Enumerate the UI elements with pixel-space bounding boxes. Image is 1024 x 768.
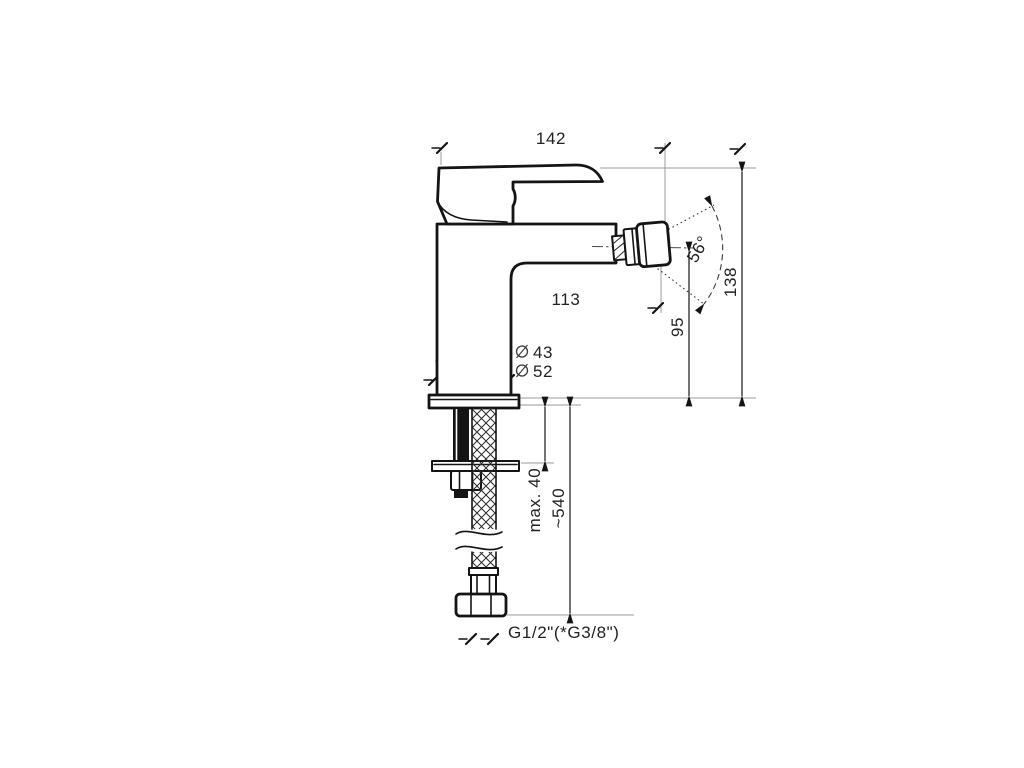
hose-hex-nut xyxy=(456,594,506,616)
hose-ferrule xyxy=(471,575,496,594)
swivel-angle-label: 56° xyxy=(683,233,713,266)
faucet-handle xyxy=(438,165,603,224)
dim-spout-height: 95 xyxy=(668,252,689,396)
spout-height-label: 95 xyxy=(668,317,687,337)
aerator-assembly xyxy=(611,222,671,270)
dim-overall-height: 138 xyxy=(721,172,742,396)
drawing-page: 95 138 max. 40 ~540 142 113 xyxy=(0,0,1024,768)
overall-height-label: 138 xyxy=(721,267,740,297)
rod-end xyxy=(454,490,468,498)
deck-max-label: max. 40 xyxy=(525,468,544,533)
dim-overall-width: 142 xyxy=(432,129,670,153)
overall-width-label: 142 xyxy=(536,129,566,148)
base-plate xyxy=(429,395,519,408)
hose-break-lower xyxy=(456,546,502,549)
tick-aux-right xyxy=(730,144,745,154)
swivel-arc xyxy=(704,206,723,304)
dim-hose-length: ~540 xyxy=(549,407,570,613)
thread-label: G1/2"(*G3/8") xyxy=(508,623,620,642)
drawing-canvas: 95 138 max. 40 ~540 142 113 xyxy=(0,0,1024,768)
base-dia-label: 52 xyxy=(533,362,553,381)
supply-hose-lower xyxy=(472,552,496,568)
hose-collar xyxy=(469,568,498,575)
body-dia-label: 43 xyxy=(533,343,553,362)
faucet xyxy=(429,165,616,408)
diameter-icon xyxy=(517,345,528,358)
faucet-body xyxy=(437,224,616,395)
dim-thread: G1/2"(*G3/8") xyxy=(459,623,620,644)
spout-reach-label: 113 xyxy=(552,290,581,309)
threaded-rod xyxy=(453,408,469,462)
hose-length-label: ~540 xyxy=(549,488,568,529)
dim-deck-max: max. 40 xyxy=(525,407,545,532)
diameter-icon xyxy=(517,364,528,377)
aerator-cap xyxy=(636,222,671,268)
supply-hose-upper xyxy=(472,408,496,529)
hose-break-upper xyxy=(456,531,502,534)
